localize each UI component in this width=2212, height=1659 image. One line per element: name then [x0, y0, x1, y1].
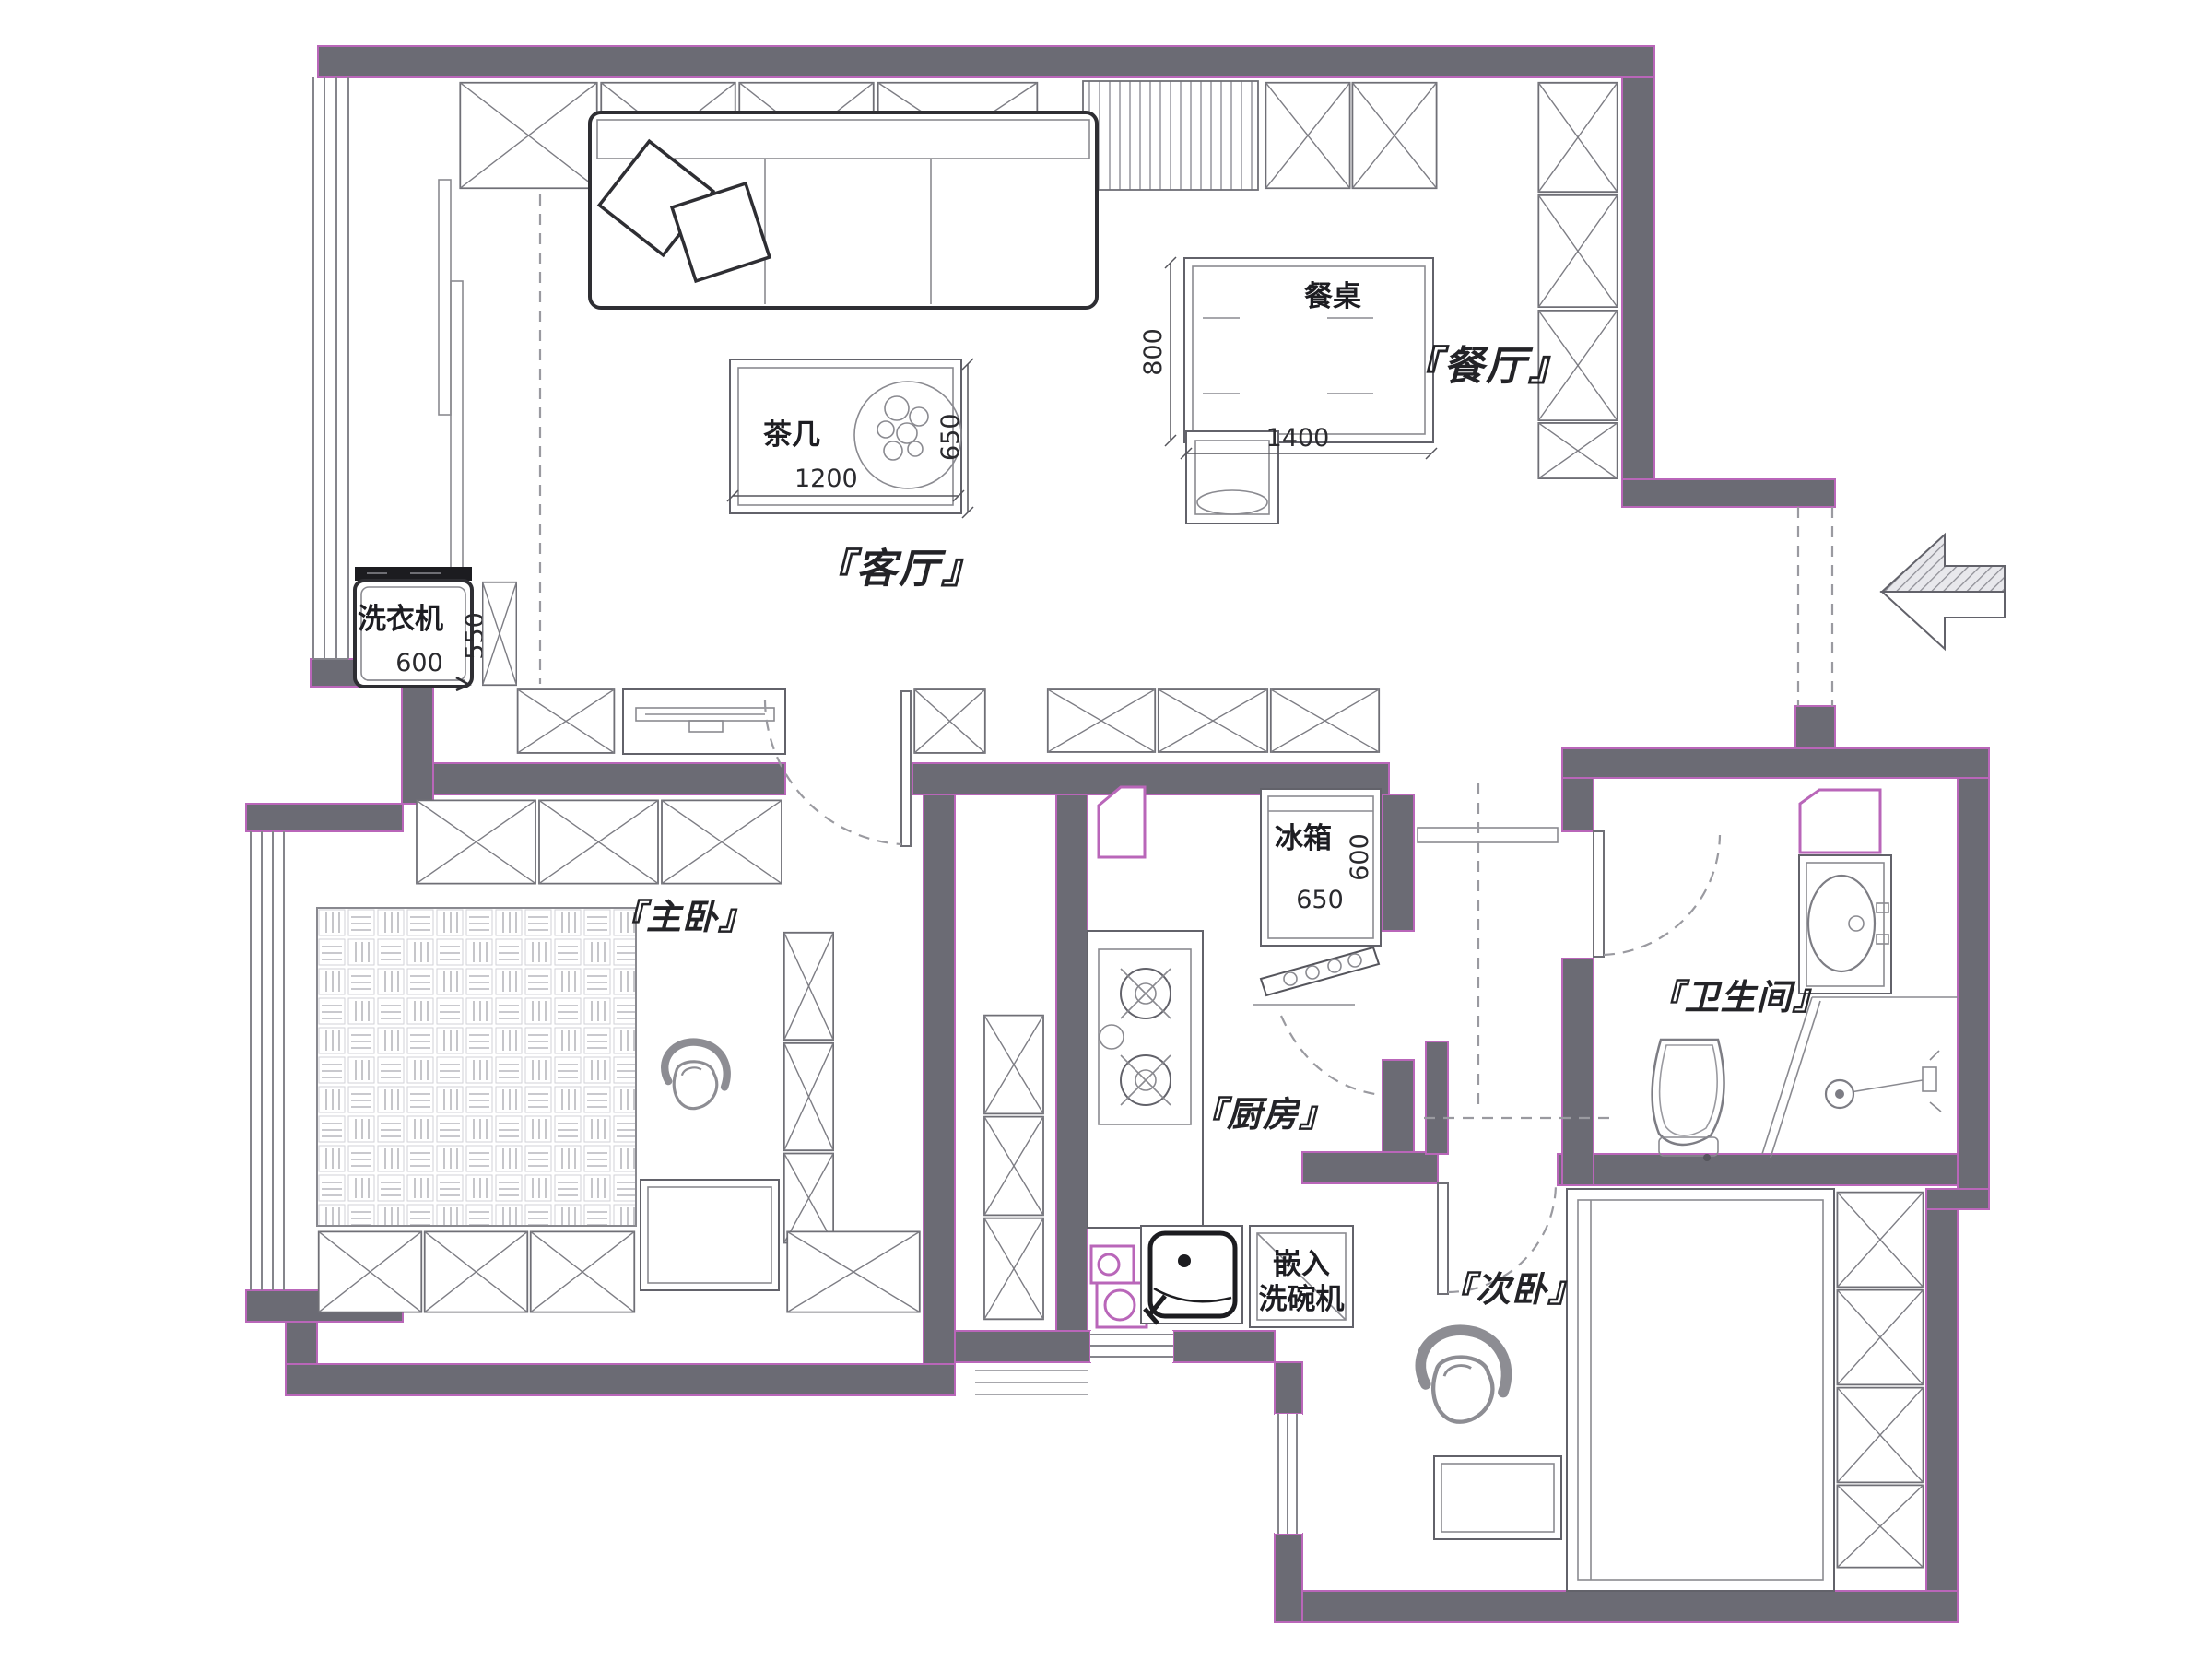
- wall-left-mid: [402, 687, 433, 804]
- dishwasher: 嵌入 洗碗机: [1250, 1226, 1353, 1327]
- dishwasher-label-2: 洗碗机: [1259, 1283, 1345, 1316]
- bathroom: 『卫生间』: [1594, 790, 1958, 1161]
- dining-table-depth-dim: 800: [1139, 328, 1168, 376]
- bedroom2-desk: [1434, 1456, 1561, 1539]
- wall-bath-left-top: [1562, 778, 1594, 831]
- fridge-width-dim: 650: [1296, 886, 1344, 914]
- coffee-table-depth-dim: 650: [936, 413, 965, 461]
- wall-right-step: [1926, 1189, 1989, 1209]
- kitchen-window: [1090, 1331, 1173, 1362]
- second-bedroom: 『次卧』: [1420, 1183, 1834, 1591]
- bathroom-niche: [1800, 790, 1880, 853]
- entry-door-opening: [1798, 507, 1832, 706]
- master-bed: [317, 908, 636, 1226]
- pantry-column: [984, 1016, 1043, 1320]
- wall-kitchen-left: [1056, 794, 1088, 1331]
- hallway-cabinet-row: [518, 689, 1380, 754]
- coffee-table-label: 茶几: [763, 418, 820, 452]
- master-low-cabinet-row: [319, 1231, 920, 1312]
- wall-bath-left-bottom: [1562, 959, 1594, 1185]
- kitchen-pass-window: [1099, 787, 1145, 857]
- wall-hall-west: [433, 763, 785, 794]
- laundry-niche: 洗衣机 600 550: [355, 567, 516, 690]
- wall-bottom: [1275, 1591, 1958, 1622]
- wall-corridor-stub: [1426, 1041, 1448, 1154]
- gas-meter: [1091, 1246, 1147, 1327]
- wall-kitchen-bottom-right: [1173, 1331, 1275, 1362]
- entry-arrow-upper: [1882, 535, 2005, 592]
- wall-bed2-right: [1926, 1209, 1958, 1622]
- entry: [1882, 535, 2005, 649]
- dining-chair: [1186, 431, 1278, 524]
- entry-wall-cabinet-column: [1538, 83, 1617, 478]
- wall-top: [318, 46, 1654, 77]
- living-room: 茶几 1200 650 『客厅』: [590, 112, 1097, 593]
- wall-bed2-top: [1302, 1152, 1438, 1183]
- wall-bay-connector: [286, 1322, 317, 1364]
- master-bench: [641, 1180, 779, 1290]
- fridge-door-swing: [1253, 947, 1379, 1005]
- wall-bath-top: [1562, 748, 1989, 778]
- second-bedroom-label: 『次卧』: [1440, 1269, 1583, 1310]
- entry-arrow-lower: [1882, 592, 2005, 649]
- wall-bed2-left-lower: [1275, 1534, 1302, 1622]
- fridge: 冰箱 650 600: [1253, 789, 1381, 1005]
- master-bay-window: [251, 831, 284, 1290]
- sofa: [590, 112, 1097, 308]
- floor-plan-page: 茶几 1200 650 『客厅』 餐桌: [0, 0, 2212, 1659]
- dining-room: 餐桌 800 1400 『餐厅』: [1139, 257, 1571, 524]
- bedroom2-armchair: [1420, 1330, 1506, 1421]
- wall-bed2-left-upper: [1275, 1362, 1302, 1414]
- dining-table-width-dim: 1400: [1266, 424, 1330, 453]
- master-bedroom-label: 『主卧』: [610, 897, 754, 937]
- corridor-shelf: [1418, 828, 1558, 842]
- wall-bath-bottom: [1558, 1154, 1958, 1185]
- dining-table: 餐桌: [1184, 258, 1433, 442]
- dining-room-label: 『餐厅』: [1401, 343, 1571, 390]
- master-wardrobe-row: [417, 800, 782, 883]
- louver-cabinet: [1083, 81, 1258, 190]
- kitchen-sink: [1141, 1226, 1242, 1324]
- master-door: [765, 691, 911, 846]
- kitchen-label: 『厨房』: [1191, 1094, 1335, 1135]
- exterior-step-lines: [975, 1371, 1088, 1394]
- bedroom2-window: [1275, 1414, 1302, 1534]
- bathroom-door: [1594, 831, 1720, 957]
- coffee-table-width-dim: 1200: [794, 465, 858, 493]
- balcony-window: [313, 77, 348, 659]
- wall-right-upper: [1622, 77, 1654, 479]
- washing-machine: 洗衣机 600 550: [355, 581, 489, 690]
- master-right-cabinet-column: [784, 933, 833, 1243]
- laundry-side-cabinet: [483, 582, 517, 686]
- vanity: [1799, 855, 1891, 994]
- master-armchair: [665, 1042, 726, 1109]
- living-room-label: 『客厅』: [814, 546, 983, 593]
- dishwasher-label-1: 嵌入: [1273, 1248, 1330, 1281]
- wall-kitchen-bottom-left: [955, 1331, 1090, 1362]
- fridge-label: 冰箱: [1275, 822, 1332, 855]
- dining-table-label: 餐桌: [1304, 280, 1361, 313]
- toilet: [1653, 1040, 1724, 1161]
- kitchen: 冰箱 650 600: [1088, 787, 1381, 1327]
- bathroom-label: 『卫生间』: [1648, 977, 1828, 1018]
- washer-width-dim: 600: [395, 649, 443, 677]
- coffee-table: 茶几 1200 650: [727, 359, 973, 518]
- fridge-depth-dim: 600: [1346, 833, 1374, 881]
- kitchen-door-arc: [1281, 1016, 1381, 1095]
- wall-entry-corner: [1622, 479, 1835, 507]
- wall-bath-right: [1958, 778, 1989, 1189]
- wall-master-bottom: [286, 1364, 955, 1395]
- wall-bay-top: [246, 804, 403, 831]
- shower-head-icon: [1826, 1051, 1941, 1112]
- tv-console: [623, 689, 785, 754]
- wall-entry-stub: [1795, 706, 1835, 748]
- shower: [1762, 997, 1958, 1158]
- washer-label: 洗衣机: [358, 603, 443, 636]
- wall-master-right: [924, 794, 955, 1364]
- bedroom2-bed: [1567, 1189, 1834, 1591]
- bedroom2-wardrobe-column: [1837, 1193, 1923, 1568]
- wall-kitchen-right-upper: [1382, 794, 1414, 931]
- floor-plan-canvas: 茶几 1200 650 『客厅』 餐桌: [0, 0, 2212, 1659]
